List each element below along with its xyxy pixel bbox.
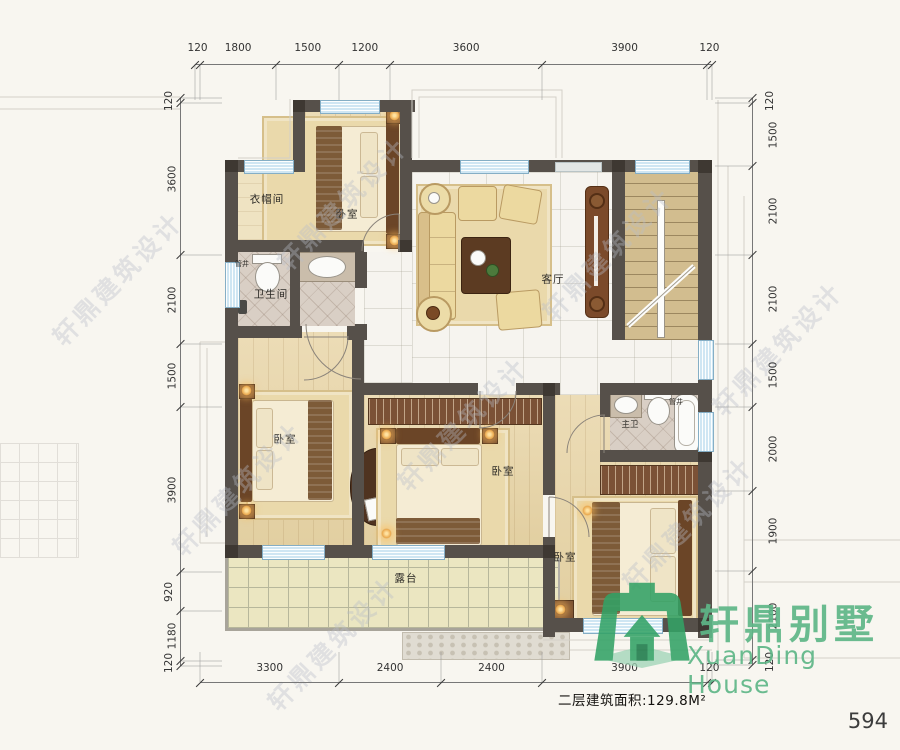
room-label-shaft-top: 管井 [235,259,249,269]
dimension-value: 120 [764,90,776,110]
dimension-value: 120 [163,653,175,673]
extension-line [200,652,201,682]
extension-line [276,64,277,100]
extension-line [712,64,713,100]
dimension-value: 3900 [166,476,178,503]
dimension-value: 1180 [166,623,178,650]
dimension-value: 120 [163,91,175,111]
dimension-value: 3600 [166,166,178,193]
dimension-value: 2400 [377,662,404,674]
extension-line [542,652,543,682]
dimension-value: 1500 [166,362,178,389]
dimension-value: 1500 [767,121,779,148]
dimension-strip-top: 12018001500120036003900120 [195,42,712,65]
extension-line [180,255,222,256]
door-arc [304,336,348,380]
extension-line [715,166,753,167]
room-label-shaft-right: 管井 [669,397,683,407]
dimension-value: 2100 [767,286,779,313]
page-number: 594 [828,709,888,733]
room-label-terrace: 露台 [395,571,418,586]
extension-line [180,407,222,408]
extension-line [180,343,222,344]
extension-line [715,491,753,492]
extension-line [180,98,222,99]
extension-line [180,611,222,612]
dimension-value: 1200 [351,42,378,54]
dimension-value: 1800 [225,42,252,54]
dimension-value: 120 [188,42,208,54]
floor-area-note: 二层建筑面积:129.8M² [558,689,706,709]
extension-line [715,406,753,407]
floor-plan-sheet: 衣帽间 卧室 卫生间 管井 客厅 卧室 卧室 主卫 管井 卧室 露台 轩鼎建筑设… [0,0,900,750]
dimension-value: 1900 [767,518,779,545]
stair-break-line [628,266,694,326]
extension-line [440,652,441,682]
dimension-value: 2100 [166,286,178,313]
extension-line [180,666,222,667]
room-label-bedroom-right: 卧室 [554,550,577,565]
extension-line [200,64,201,100]
dimension-value: 2100 [767,197,779,224]
extension-line [180,572,222,573]
extension-line [180,103,222,104]
room-label-cloakroom: 衣帽间 [250,192,285,207]
dimension-value: 3600 [453,42,480,54]
logo-cap [629,583,655,594]
extension-line [390,64,391,100]
room-label-master-bath: 主卫 [621,418,638,430]
room-label-bedroom-middle: 卧室 [492,464,515,479]
extension-line [715,254,753,255]
dimension-value: 1500 [767,362,779,389]
dimension-value: 3300 [256,662,283,674]
dimension-value: 1500 [294,42,321,54]
door-arc [306,324,361,379]
extension-line [542,64,543,100]
extension-line [715,343,753,344]
dimension-strip-left: 12036002100150039009201180120 [158,98,181,666]
dimension-value: 3900 [611,42,638,54]
extension-line [715,98,753,99]
extension-line [706,64,707,100]
extension-line [715,571,753,572]
xuanding-logo-icon [586,580,698,668]
dimension-strip-right: 1201500210021001500200019002100120 [752,98,775,665]
extension-line [339,652,340,682]
logo-roof [624,615,661,637]
door-arc [567,415,605,453]
room-label-bathroom: 卫生间 [254,287,289,302]
extension-line [339,64,340,100]
dimension-value: 920 [163,582,175,602]
extension-line [180,660,222,661]
dimension-value: 2400 [478,662,505,674]
dimension-value: 120 [699,42,719,54]
door-arc [549,497,589,537]
extension-line [715,103,753,104]
dimension-value: 2000 [767,436,779,463]
door-arc [362,214,399,251]
extension-line [195,64,196,100]
logo-door [637,644,648,661]
logo-name-en: XuanDing House [687,641,900,699]
